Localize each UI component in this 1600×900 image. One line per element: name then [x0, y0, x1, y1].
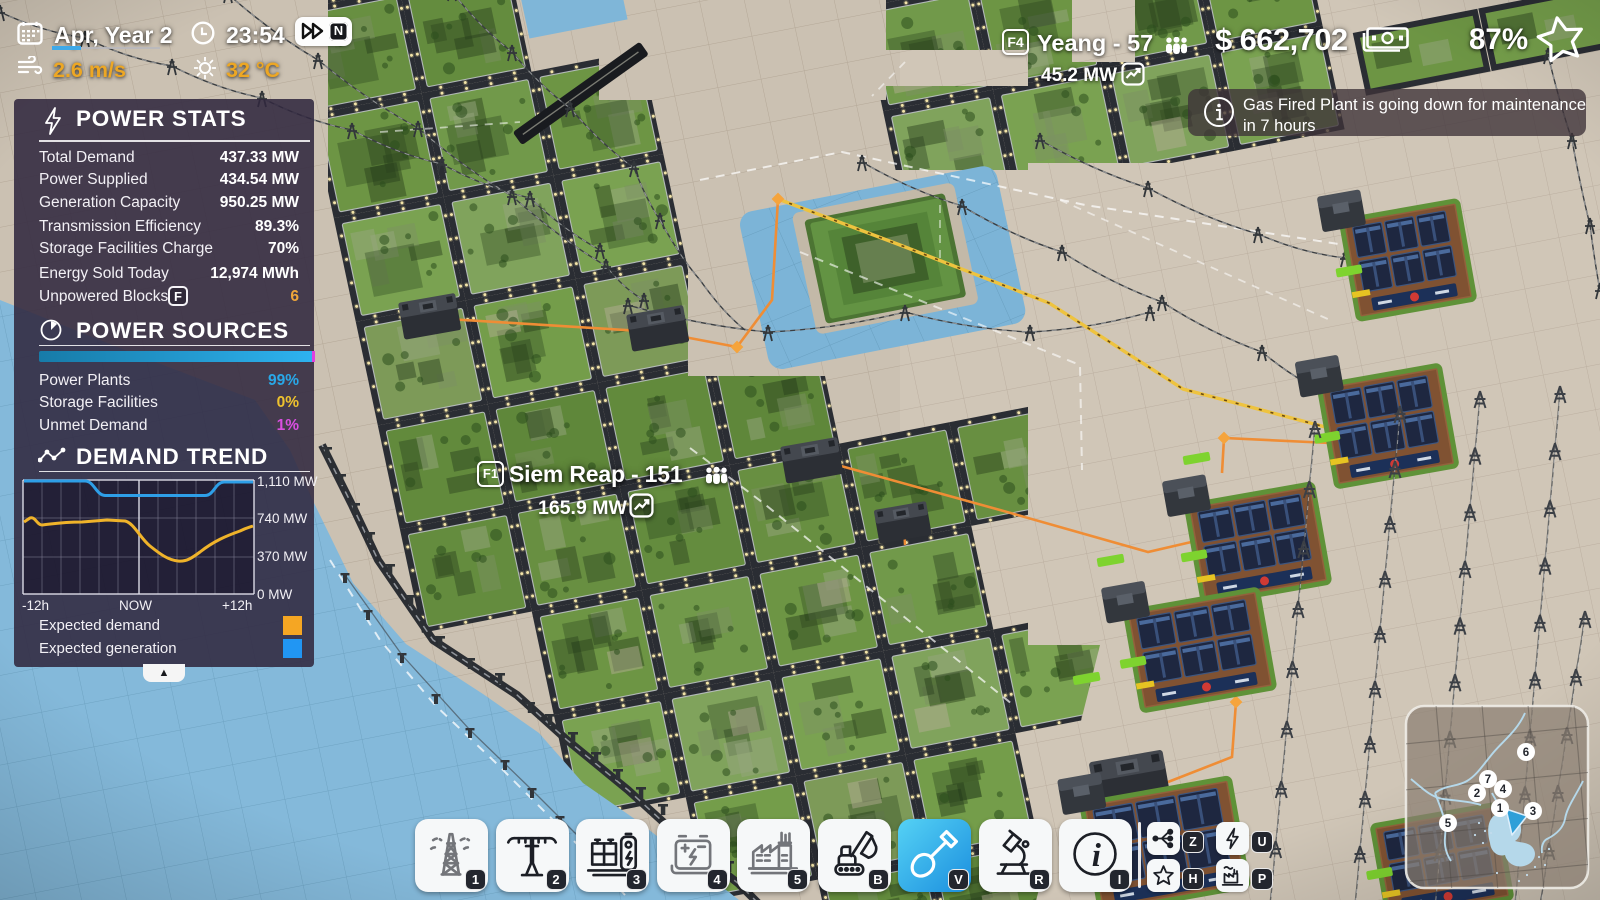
svg-text:2: 2 — [1474, 788, 1480, 800]
svg-text:4: 4 — [1500, 784, 1507, 796]
svg-text:i: i — [1092, 838, 1101, 874]
svg-text:1: 1 — [1497, 803, 1504, 815]
svg-text:3: 3 — [1530, 806, 1536, 818]
svg-text:6: 6 — [1523, 747, 1529, 759]
svg-text:5: 5 — [1445, 818, 1452, 830]
svg-text:7: 7 — [1485, 774, 1491, 786]
